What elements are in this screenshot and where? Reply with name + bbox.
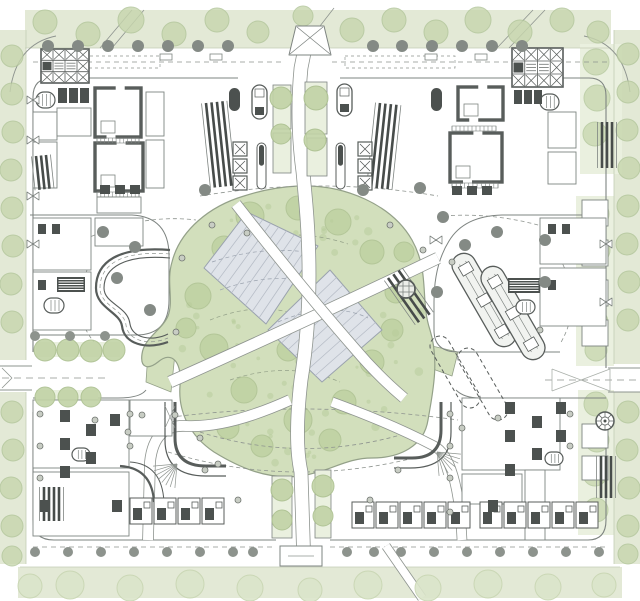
column-small [127, 443, 133, 449]
column [369, 547, 379, 557]
pod-dark [431, 88, 442, 111]
park-tree [360, 240, 384, 264]
radial-hatch [158, 464, 177, 479]
hall-building [458, 87, 503, 120]
elevator-box [556, 430, 566, 442]
lawn-texture [265, 204, 271, 210]
street-tree [18, 574, 42, 598]
lawn-texture [321, 228, 327, 234]
planter-tree [57, 339, 79, 361]
lawn-texture [256, 357, 260, 361]
curb-tick [160, 54, 172, 60]
lawn-texture [352, 239, 358, 245]
room [146, 92, 164, 136]
elevator-box [38, 280, 46, 290]
street-tree [617, 401, 639, 423]
column-large [459, 239, 471, 251]
street-tree [424, 20, 448, 44]
column-large [162, 40, 174, 52]
street-tree [616, 233, 638, 255]
column-small [37, 411, 43, 417]
lawn-texture [364, 227, 372, 235]
column-large [396, 40, 408, 52]
elevator-box [110, 414, 120, 426]
column-large [539, 276, 551, 288]
kiosk-counter [205, 508, 214, 520]
column-large [414, 182, 426, 194]
column [594, 547, 604, 557]
lawn-texture [387, 342, 394, 349]
lawn-texture [381, 406, 387, 412]
street-tree [587, 21, 609, 43]
column [30, 547, 40, 557]
park-tree [231, 377, 257, 403]
elevator-box [505, 402, 515, 414]
lawn-texture [309, 429, 315, 435]
lawn-texture [267, 429, 273, 435]
street-tree [2, 439, 24, 461]
elevator-box [69, 88, 78, 103]
curb-tick [210, 54, 222, 60]
hall-building [95, 143, 143, 191]
column-small [202, 467, 208, 473]
column [162, 547, 172, 557]
column-small [395, 467, 401, 473]
escalator-rail [392, 105, 401, 190]
glass-lift [397, 280, 415, 298]
elevator-box [60, 466, 70, 478]
street-tree [2, 546, 22, 566]
spiral-center [604, 420, 607, 423]
elevator-box [556, 402, 566, 414]
lawn-texture [236, 324, 241, 329]
planter-tree [80, 340, 102, 362]
street-tree [237, 575, 263, 601]
core-elevator [43, 62, 52, 70]
column [528, 547, 538, 557]
expansion-joint [430, 236, 442, 244]
elevator-box [80, 88, 89, 103]
lawn-texture [354, 215, 359, 220]
elevator-box [115, 185, 125, 194]
column-small [209, 222, 215, 228]
hatch-band [452, 126, 496, 131]
stair-pod [545, 452, 563, 465]
street-tree [535, 574, 561, 600]
entry-canopy [289, 26, 331, 55]
light-pole-cap [259, 145, 264, 166]
lawn-texture [355, 366, 358, 369]
street-tree [617, 195, 639, 217]
elevator-box [505, 464, 515, 476]
elevator-box [130, 185, 140, 194]
room [540, 268, 606, 326]
elevator-box [60, 410, 70, 422]
column-large [486, 40, 498, 52]
column-large [367, 40, 379, 52]
pod-detail [255, 107, 264, 115]
column-small [179, 255, 185, 261]
pod-dark [229, 88, 240, 111]
street-tree [1, 515, 23, 537]
column-large [111, 272, 123, 284]
column [129, 547, 139, 557]
column-large [491, 226, 503, 238]
street-tree [0, 273, 22, 295]
street-tree [618, 477, 640, 499]
column-small [447, 509, 453, 515]
column [495, 547, 505, 557]
street-tree [0, 477, 22, 499]
column-large [129, 241, 141, 253]
park-tree [185, 283, 211, 309]
park-tree [394, 242, 414, 262]
lawn-texture [230, 219, 234, 223]
column [195, 547, 205, 557]
column-small [173, 329, 179, 335]
street-tree [247, 21, 269, 43]
s-curve-ramp [104, 257, 170, 338]
column-large [144, 304, 156, 316]
elevator-box [534, 90, 542, 104]
column [396, 547, 406, 557]
column-small [37, 475, 43, 481]
column-small [367, 497, 373, 503]
column-large [199, 184, 211, 196]
column [30, 331, 40, 341]
elevator-box [58, 88, 67, 103]
hall-building [450, 133, 502, 182]
lawn-texture [267, 393, 273, 399]
column-small [215, 461, 221, 467]
kiosk-counter [403, 512, 412, 524]
street-tree [1, 197, 23, 219]
column-small [447, 443, 453, 449]
lawn-texture [394, 360, 398, 364]
lawn-texture [380, 312, 387, 319]
street-tree [618, 157, 640, 179]
park-tree [325, 209, 351, 235]
elevator-box [548, 224, 556, 234]
street-tree [415, 575, 441, 601]
street-tree [354, 571, 382, 599]
kiosk-counter [427, 512, 436, 524]
kiosk-counter [507, 512, 516, 524]
lawn-texture [367, 400, 371, 404]
elevator-box [505, 430, 515, 442]
curb-tick [475, 54, 487, 60]
kiosk-counter [555, 512, 564, 524]
room [548, 152, 576, 184]
column-small [125, 429, 131, 435]
elevator-box [482, 186, 492, 195]
planter-tree [312, 475, 334, 497]
column-small [447, 475, 453, 481]
street-tree [465, 7, 491, 33]
planter-tree [271, 479, 293, 501]
light-pole-cap [338, 145, 343, 166]
planter-tree [304, 86, 328, 110]
street-tree [1, 311, 23, 333]
courtyard-tree [583, 122, 607, 146]
street-tree [0, 159, 22, 181]
room [97, 197, 141, 213]
elevator-box [524, 90, 532, 104]
stair-pod [44, 298, 64, 313]
elevator-box [467, 186, 477, 195]
street-tree [1, 401, 23, 423]
hall-opening [469, 118, 478, 123]
column-small [37, 443, 43, 449]
kiosk-counter [483, 512, 492, 524]
kiosk-counter [157, 508, 166, 520]
column-small [235, 497, 241, 503]
elevator-box [100, 185, 110, 194]
kiosk-counter [181, 508, 190, 520]
planter-tree [103, 339, 125, 361]
street-tree [617, 81, 639, 103]
lawn-texture [308, 451, 312, 455]
planter-tree [58, 387, 78, 407]
room [57, 108, 91, 136]
street-tree [2, 235, 24, 257]
road-chevron [2, 378, 12, 388]
planter-tree [34, 339, 56, 361]
column [462, 547, 472, 557]
street-tree [1, 83, 23, 105]
pavilion [582, 456, 608, 480]
lawn-texture [331, 249, 338, 256]
elevator-box [488, 500, 498, 512]
street-tree [592, 573, 616, 597]
street-tree [340, 18, 364, 42]
elevator-box [532, 448, 542, 460]
elevator-box [112, 500, 122, 512]
street-tree [550, 8, 574, 32]
column [248, 547, 258, 557]
column-small [537, 327, 543, 333]
lawn-texture [179, 345, 186, 352]
street-tree [616, 119, 638, 141]
core-elevator [514, 63, 524, 73]
column-small [567, 411, 573, 417]
green-strip-left [0, 30, 26, 360]
column [561, 547, 571, 557]
street-tree [618, 544, 638, 564]
column-small [447, 411, 453, 417]
park-tree [381, 319, 403, 341]
lawn-texture [193, 313, 200, 320]
column-small [197, 435, 203, 441]
column-large [192, 40, 204, 52]
column [100, 331, 110, 341]
street-tree [617, 515, 639, 537]
radial-hatch [162, 464, 177, 483]
street-tree [474, 570, 502, 598]
column-large [516, 40, 528, 52]
lawn-texture [282, 381, 287, 386]
lawn-texture [231, 319, 235, 323]
column-large [102, 40, 114, 52]
lawn-texture [207, 392, 213, 398]
column-large [222, 40, 234, 52]
planter-tree [271, 124, 291, 144]
stair-pod [516, 300, 535, 314]
column-small [172, 412, 178, 418]
street-tree [176, 570, 204, 598]
column [96, 547, 106, 557]
column-small [92, 417, 98, 423]
street-tree [618, 271, 640, 293]
room [130, 400, 172, 436]
column-small [139, 412, 145, 418]
kiosk-counter [579, 512, 588, 524]
planter-tree [304, 129, 326, 151]
pod-detail [340, 104, 349, 112]
street-tree [617, 43, 639, 65]
column-small [127, 411, 133, 417]
park-tree [176, 318, 196, 338]
room [146, 140, 164, 188]
column-large [97, 226, 109, 238]
column-small [449, 259, 455, 265]
street-tree [2, 121, 24, 143]
escalator-rail [202, 103, 211, 188]
street-tree [293, 6, 313, 26]
street-tree [56, 571, 84, 599]
elevator-box [562, 224, 570, 234]
elevator-box [86, 452, 96, 464]
column-large [357, 184, 369, 196]
column [342, 547, 352, 557]
street-tree [616, 439, 638, 461]
hall-opening [478, 85, 487, 90]
elevator-box [452, 186, 462, 195]
room [548, 112, 576, 148]
kiosk-counter [379, 512, 388, 524]
column-small [387, 222, 393, 228]
street-tree [298, 578, 322, 601]
room [33, 112, 57, 140]
road-chevron [2, 368, 12, 378]
elevator-box [38, 224, 46, 234]
room [462, 474, 522, 504]
kiosk-counter [355, 512, 364, 524]
park-tree [319, 429, 341, 451]
lawn-texture [271, 459, 279, 467]
lawn-texture [312, 454, 317, 459]
street-tree [382, 8, 406, 32]
hall-opening [107, 135, 116, 140]
street-tree [205, 8, 229, 32]
column-small [495, 415, 501, 421]
architectural-site-plan [0, 0, 640, 601]
planter-tree [272, 510, 292, 530]
floor-plan-canvas [0, 0, 640, 601]
kiosk-counter [531, 512, 540, 524]
elevator-box [514, 90, 522, 104]
column-large [132, 40, 144, 52]
elevator-box [40, 500, 50, 512]
lawn-texture [415, 367, 424, 376]
stair-pod [540, 94, 559, 110]
column-large [72, 40, 84, 52]
hall-building [95, 88, 141, 137]
column-small [244, 230, 250, 236]
street-tree [117, 575, 143, 601]
lawn-texture [322, 409, 329, 416]
column [63, 547, 73, 557]
elevator-box [532, 416, 542, 428]
planter-tree [270, 87, 292, 109]
column-small [567, 443, 573, 449]
column-large [42, 40, 54, 52]
hall-opening [116, 86, 125, 91]
lawn-texture [230, 363, 236, 369]
column [228, 547, 238, 557]
elevator-box [60, 438, 70, 450]
elevator-box [52, 224, 60, 234]
column-small [420, 247, 426, 253]
planter-tree [35, 387, 55, 407]
column-large [437, 211, 449, 223]
planter-tree [81, 387, 101, 407]
street-tree [118, 7, 144, 33]
street-tree [1, 45, 23, 67]
street-tree [617, 309, 639, 331]
elevator-box [86, 424, 96, 436]
column-large [539, 234, 551, 246]
column [65, 331, 75, 341]
column [429, 547, 439, 557]
column-large [426, 40, 438, 52]
street-tree [33, 10, 57, 34]
curb-tick [425, 54, 437, 60]
column-small [459, 425, 465, 431]
planter-tree [313, 506, 333, 526]
column-large [431, 286, 443, 298]
kiosk-counter [133, 508, 142, 520]
column-large [456, 40, 468, 52]
